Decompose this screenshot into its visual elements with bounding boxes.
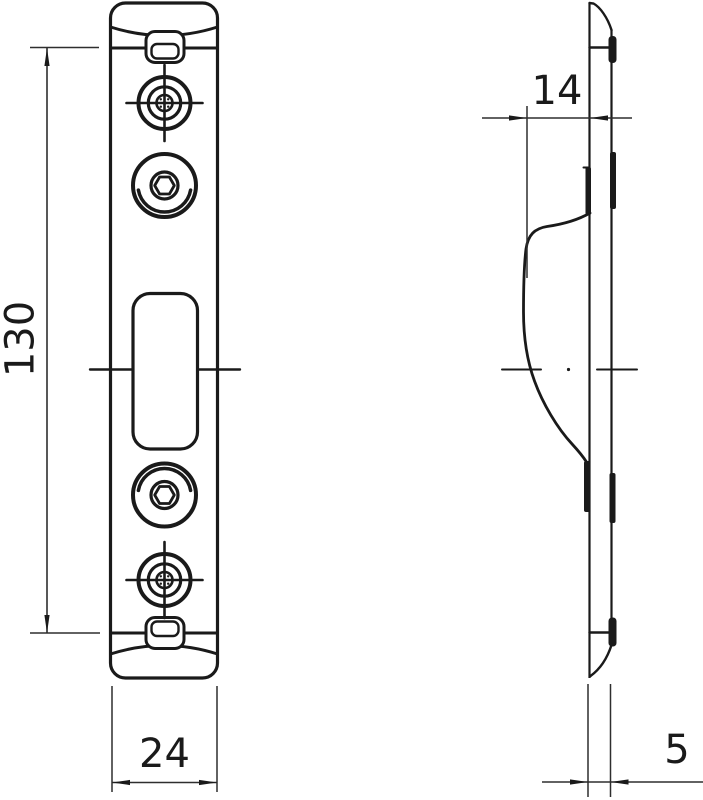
dimension-width: 24 — [112, 686, 217, 792]
arrowhead-left — [112, 780, 130, 785]
ramp-foot-thickening — [584, 461, 591, 512]
lower-edge-lip — [610, 473, 616, 523]
arrowhead-left — [590, 115, 608, 120]
arrowhead-left — [611, 779, 629, 784]
bottom-tab-edge — [609, 618, 617, 647]
top-retainer-tab — [146, 32, 184, 63]
arrowhead-right — [570, 779, 588, 784]
bottom-retainer-tab — [146, 618, 184, 649]
dimension-label-width: 24 — [139, 731, 190, 777]
dimension-label-depth: 14 — [532, 68, 583, 114]
dimension-label-height: 130 — [0, 301, 44, 377]
dimension-height: 130 — [0, 48, 100, 634]
hex-socket-screw-top — [133, 154, 196, 217]
arrowhead-right — [199, 780, 217, 785]
ramp-root-thickening — [586, 167, 592, 215]
hex-socket-top — [155, 177, 175, 194]
arrowhead-right — [509, 115, 527, 120]
top-tab-edge — [609, 36, 617, 63]
front-view — [90, 3, 240, 678]
dimension-thickness: 5 — [542, 684, 703, 797]
dimension-depth: 14 — [482, 68, 632, 278]
top-cap-chamfer — [590, 3, 612, 30]
cross-screw-hole-top — [127, 65, 203, 141]
bottom-cap-chamfer — [591, 645, 612, 676]
arrowhead-up — [44, 48, 49, 66]
cross-screw-hole-bottom — [127, 542, 203, 618]
arrowhead-down — [44, 615, 49, 633]
technical-drawing-page: 130 24 14 5 — [0, 0, 703, 800]
side-center-dot — [567, 368, 570, 371]
latch-slot — [133, 294, 198, 450]
hex-socket-bottom — [155, 487, 175, 504]
keeper-plate-drawing: 130 24 14 5 — [0, 0, 703, 800]
keeper-ramp-curve — [524, 213, 591, 462]
dimension-label-thickness: 5 — [664, 727, 689, 773]
hex-socket-screw-bottom — [133, 464, 196, 527]
upper-edge-lip — [610, 152, 616, 209]
